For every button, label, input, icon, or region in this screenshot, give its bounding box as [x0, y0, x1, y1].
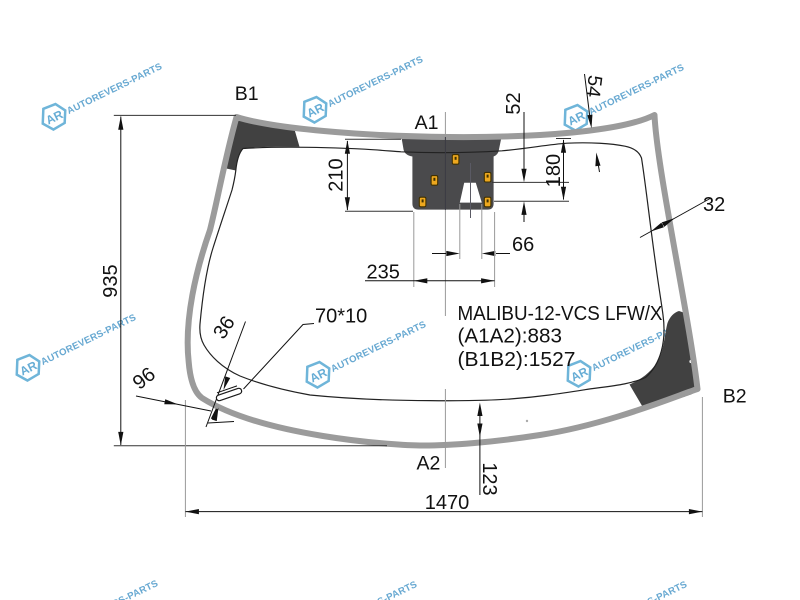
svg-text:B1: B1 [235, 83, 259, 105]
svg-text:36: 36 [209, 312, 240, 343]
svg-text:54: 54 [581, 74, 606, 99]
svg-text:235: 235 [367, 262, 400, 284]
svg-text:935: 935 [100, 264, 122, 297]
svg-text:210: 210 [326, 158, 348, 191]
svg-text:66: 66 [512, 234, 534, 256]
svg-text:70*10: 70*10 [315, 306, 367, 328]
svg-text:1470: 1470 [425, 492, 470, 514]
svg-text:MALIBU-12-VCS LFW/X: MALIBU-12-VCS LFW/X [458, 302, 663, 325]
svg-text:96: 96 [129, 363, 160, 394]
svg-text:52: 52 [503, 92, 525, 114]
svg-text:(A1A2):883: (A1A2):883 [458, 325, 563, 348]
svg-text:(B1B2):1527: (B1B2):1527 [458, 348, 576, 371]
svg-text:123: 123 [478, 462, 500, 495]
svg-text:A1: A1 [415, 112, 439, 134]
svg-text:32: 32 [703, 194, 725, 216]
svg-text:180: 180 [543, 154, 565, 187]
svg-text:A2: A2 [417, 453, 441, 475]
svg-text:B2: B2 [723, 386, 747, 408]
